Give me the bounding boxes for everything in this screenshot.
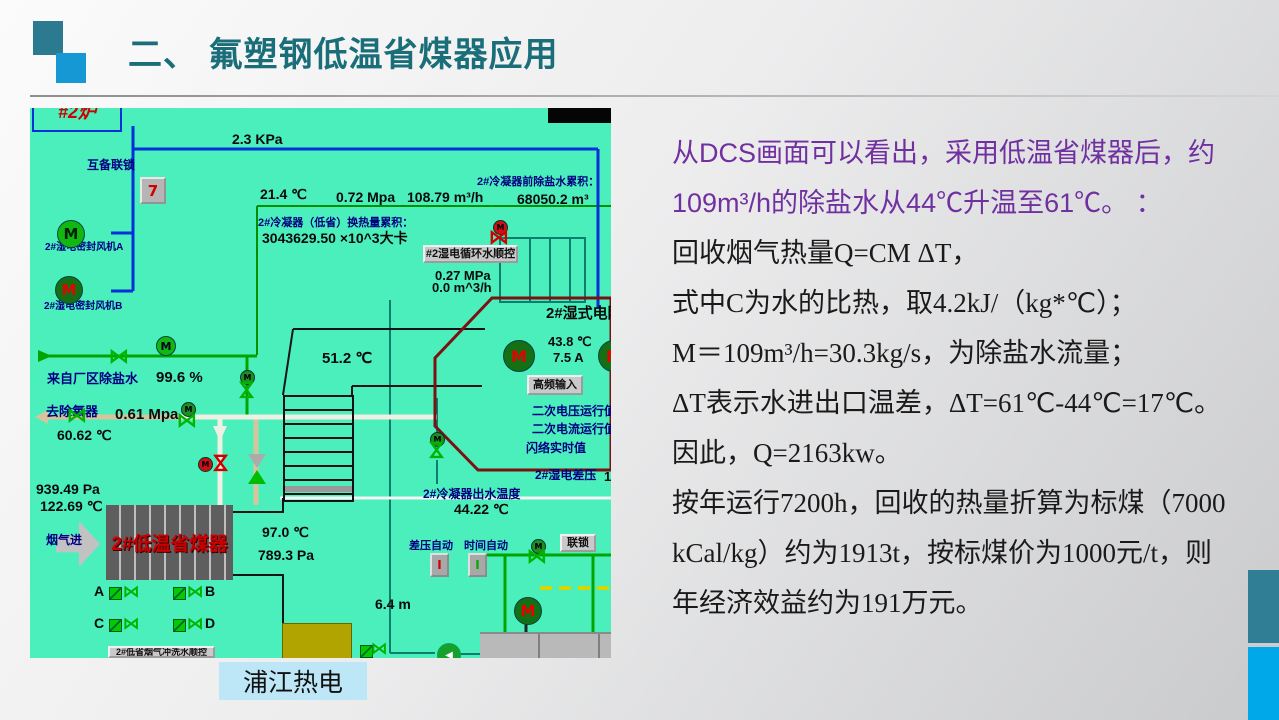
dcs-label: 2#湿式电除尘 <box>546 306 611 323</box>
dcs-valve-motor-icon: I <box>468 553 487 577</box>
dcs-label: 差压自动 <box>409 540 453 552</box>
flow-in-arrow <box>38 350 52 362</box>
dcs-label: 789.3 Pa <box>258 548 314 563</box>
narrative-line: 年经济效益约为191万元。 <box>672 578 1257 628</box>
narrative-line: 按年运行7200h，回收的热量折算为标煤（7000 <box>672 478 1257 528</box>
dcs-label: 互备联锁 <box>87 159 135 172</box>
dcs-label: 2#湿电密封风机B <box>44 301 122 312</box>
dcs-valve-motor-icon: M <box>503 340 535 372</box>
dcs-valve-motor-icon: ⋈ <box>176 412 198 428</box>
dcs-label: 51.2 ℃ <box>322 351 372 368</box>
caption-text: 浦江热电 <box>243 663 343 699</box>
dcs-label: 二次电压运行值 <box>532 405 611 418</box>
narrative-line: ΔT表示水进出口温差，ΔT=61℃-44℃=17℃。 <box>672 378 1257 428</box>
dcs-label: 烟气进 <box>46 534 82 547</box>
dcs-label: D <box>205 616 215 631</box>
narrative-line: 回收烟气热量Q=CM ΔT， <box>672 228 1257 278</box>
furnace-label-box: #2炉 <box>32 108 122 132</box>
dcs-label: 3043629.50 ×10^3大卡 <box>262 231 408 246</box>
caption-box: 浦江热电 <box>219 662 367 700</box>
dcs-label: 1 <box>604 470 611 484</box>
dcs-label: 0.61 Mpa <box>115 407 178 424</box>
condenser-hatch <box>283 395 354 502</box>
dcs-label: 6.4 m <box>375 597 411 612</box>
header-divider <box>30 95 1279 97</box>
dcs-label: 0.72 Mpa <box>336 190 395 205</box>
slide: 二、 氟塑钢低温省煤器应用 <box>0 0 1279 720</box>
dcs-valve-motor-icon: ⋈ <box>120 616 142 632</box>
dcs-label: 2#冷凝器前除盐水累积： <box>477 176 599 188</box>
dcs-label: 来自厂区除盐水 <box>47 372 138 386</box>
dcs-label: 闪络实时值 <box>526 442 586 455</box>
yellow-block <box>282 623 352 658</box>
logo-square-teal <box>33 21 63 55</box>
dcs-label: C <box>94 616 104 631</box>
dcs-valve-motor-icon: ⋈ <box>429 439 445 461</box>
dcs-button[interactable]: 2#低省烟气冲洗水顺控 <box>108 646 215 658</box>
dcs-valve-motor-icon: ⋈ <box>184 616 206 632</box>
dcs-valve-motor-icon: ⋈ <box>526 548 548 564</box>
dcs-valve-motor-icon: M <box>55 276 83 304</box>
dcs-label: 2#湿电差压 <box>535 469 596 482</box>
narrative-text: 从DCS画面可以看出，采用低温省煤器后，约109m³/h的除盐水从44℃升温至6… <box>672 128 1257 628</box>
dcs-label: 2.3 KPa <box>232 132 283 147</box>
logo-square-blue <box>56 53 86 83</box>
dcs-label: 二次电流运行值 <box>532 423 611 436</box>
economizer-label: 2#低温省煤器 <box>111 529 227 556</box>
top-right-black-box <box>548 108 611 123</box>
dcs-valve-motor-icon: I <box>430 553 449 577</box>
dcs-valve-motor-icon: ⋈ <box>368 641 390 657</box>
dcs-label: 68050.2 m³ <box>517 192 589 207</box>
dcs-screenshot: #2炉 2#低温省煤器 2.3 KPa互备联锁2#湿电密封风机A2#湿电密封风机… <box>30 108 611 658</box>
edge-square-teal <box>1248 570 1279 643</box>
dcs-label: 97.0 ℃ <box>262 525 309 540</box>
dcs-label: 60.62 ℃ <box>57 428 112 443</box>
dcs-valve-motor-icon: ⋈ <box>488 229 510 245</box>
dcs-label: 2#冷凝器（低省）换热量累积： <box>258 217 413 229</box>
dcs-valve-motor-icon: ⋈ <box>184 584 206 600</box>
dcs-valve-motor-icon <box>248 454 266 484</box>
narrative-line: kCal/kg）约为1913t，按标煤价为1000元/t，则 <box>672 528 1257 578</box>
dcs-valve-motor-icon: 7 <box>140 177 166 204</box>
dcs-button[interactable]: 高频输入 <box>527 375 583 395</box>
dcs-label: 99.6 % <box>156 370 203 387</box>
dcs-label: 44.22 ℃ <box>454 502 509 517</box>
dcs-label: 21.4 ℃ <box>260 187 307 202</box>
dcs-label: 2#冷凝器出水温度 <box>423 488 520 501</box>
economizer-block: 2#低温省煤器 <box>106 505 233 580</box>
dcs-valve-motor-icon: M <box>514 597 542 625</box>
dcs-valve-motor-icon: M <box>156 336 176 356</box>
dcs-label: 2#湿电密封风机A <box>45 242 123 253</box>
dcs-valve-motor-icon: ⋈ <box>213 452 229 474</box>
narrative-line: M＝109m³/h=30.3kg/s，为除盐水流量； <box>672 328 1257 378</box>
dcs-valve-motor-icon: M <box>57 220 85 248</box>
duct-lines <box>233 329 485 623</box>
dcs-valve-motor-icon: ⋈ <box>108 348 130 364</box>
dcs-label: 时间自动 <box>464 540 508 552</box>
tank-structure <box>480 632 611 658</box>
dcs-label: 939.49 Pa <box>36 482 100 497</box>
dcs-label: 122.69 ℃ <box>40 499 102 514</box>
dcs-label: A <box>94 584 104 599</box>
narrative-line: 因此，Q=2163kw。 <box>672 428 1257 478</box>
narrative-line: 109m³/h的除盐水从44℃升温至61℃。 ： <box>672 178 1257 228</box>
narrative-line: 式中C为水的比热，取4.2kJ/（kg*℃）； <box>672 278 1257 328</box>
dcs-valve-motor-icon: ⋈ <box>239 379 255 401</box>
dcs-valve-motor-icon: ⋈ <box>66 407 88 423</box>
dcs-label: B <box>205 584 215 599</box>
dcs-label: 43.8 ℃ <box>548 335 592 349</box>
furnace-label: #2炉 <box>58 108 96 122</box>
white-down-arrow <box>213 426 227 441</box>
dcs-button[interactable]: 联锁 <box>560 534 596 552</box>
dcs-label: 7.5 A <box>553 351 584 365</box>
dcs-label: 0.0 m^3/h <box>432 281 492 295</box>
page-title: 二、 氟塑钢低温省煤器应用 <box>128 27 558 76</box>
dcs-valve-motor-icon: ⋈ <box>120 584 142 600</box>
narrative-line: 从DCS画面可以看出，采用低温省煤器后，约 <box>672 128 1257 178</box>
edge-square-blue <box>1248 647 1279 720</box>
dcs-label: 108.79 m³/h <box>407 190 483 205</box>
narrative-lines: 从DCS画面可以看出，采用低温省煤器后，约109m³/h的除盐水从44℃升温至6… <box>672 128 1257 628</box>
